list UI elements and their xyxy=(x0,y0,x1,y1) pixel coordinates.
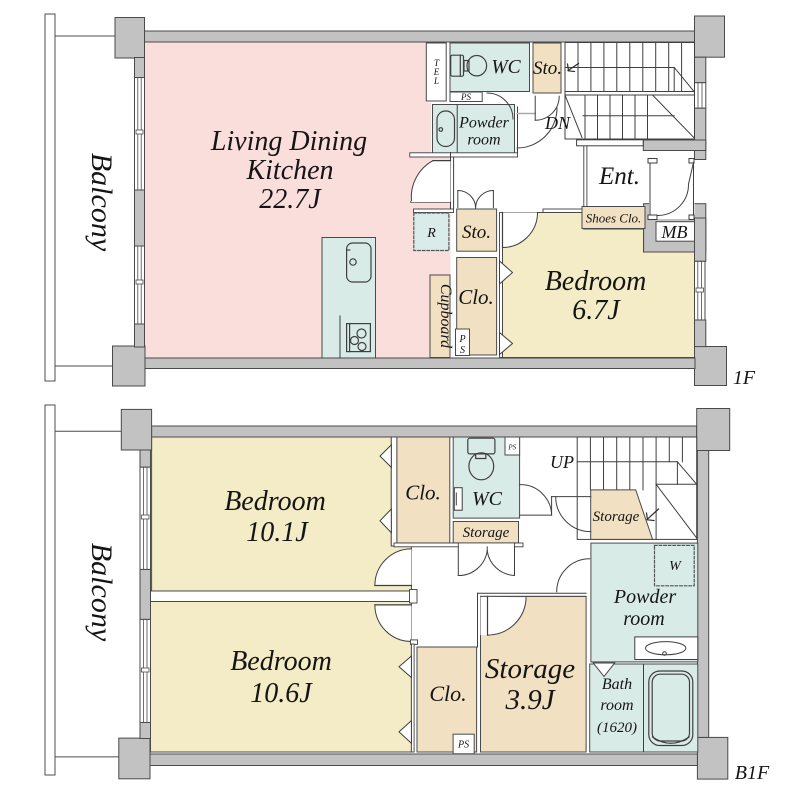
svg-text:UP: UP xyxy=(550,452,574,472)
svg-text:Living Dining: Living Dining xyxy=(210,126,367,157)
svg-text:Sto.: Sto. xyxy=(533,58,562,79)
svg-text:R: R xyxy=(426,226,436,241)
svg-text:Clo.: Clo. xyxy=(458,285,494,309)
svg-text:DN: DN xyxy=(544,113,571,133)
svg-text:Kitchen: Kitchen xyxy=(245,155,333,186)
svg-text:22.7J: 22.7J xyxy=(259,184,322,215)
svg-text:Powder: Powder xyxy=(613,586,676,608)
svg-text:(1620): (1620) xyxy=(597,720,637,736)
svg-text:W: W xyxy=(669,559,682,574)
svg-text:Ent.: Ent. xyxy=(598,163,640,190)
svg-text:Clo.: Clo. xyxy=(429,681,466,706)
svg-text:MB: MB xyxy=(661,222,688,242)
svg-text:WC: WC xyxy=(472,488,503,510)
svg-text:B1F: B1F xyxy=(735,762,770,784)
svg-text:PS: PS xyxy=(507,444,516,452)
svg-text:Sto.: Sto. xyxy=(462,222,491,243)
svg-text:Bath: Bath xyxy=(602,676,632,693)
svg-text:WC: WC xyxy=(491,57,521,78)
svg-text:6.7J: 6.7J xyxy=(572,295,621,326)
svg-text:10.6J: 10.6J xyxy=(250,678,313,709)
svg-text:10.1J: 10.1J xyxy=(246,517,309,548)
svg-text:room: room xyxy=(623,608,664,630)
svg-text:Storage: Storage xyxy=(463,525,510,541)
svg-text:PS: PS xyxy=(460,92,471,102)
svg-text:S: S xyxy=(460,345,465,356)
svg-text:Clo.: Clo. xyxy=(405,481,441,505)
svg-text:PS: PS xyxy=(457,740,469,751)
svg-text:1F: 1F xyxy=(733,367,756,389)
svg-text:Bedroom: Bedroom xyxy=(545,266,647,297)
svg-text:Balcony: Balcony xyxy=(85,153,118,252)
svg-text:Shoes Clo.: Shoes Clo. xyxy=(586,211,642,226)
svg-text:L: L xyxy=(433,76,439,86)
svg-text:3.9J: 3.9J xyxy=(504,684,555,716)
svg-text:Storage: Storage xyxy=(485,653,575,685)
svg-text:P: P xyxy=(458,334,465,345)
svg-text:Bedroom: Bedroom xyxy=(230,646,332,677)
svg-text:Balcony: Balcony xyxy=(85,543,118,642)
svg-text:Cupboard: Cupboard xyxy=(437,284,454,349)
svg-text:room: room xyxy=(600,697,633,714)
svg-text:Bedroom: Bedroom xyxy=(224,486,326,517)
svg-text:Storage: Storage xyxy=(593,509,640,525)
svg-text:Powder: Powder xyxy=(458,115,510,132)
svg-text:room: room xyxy=(467,132,500,149)
